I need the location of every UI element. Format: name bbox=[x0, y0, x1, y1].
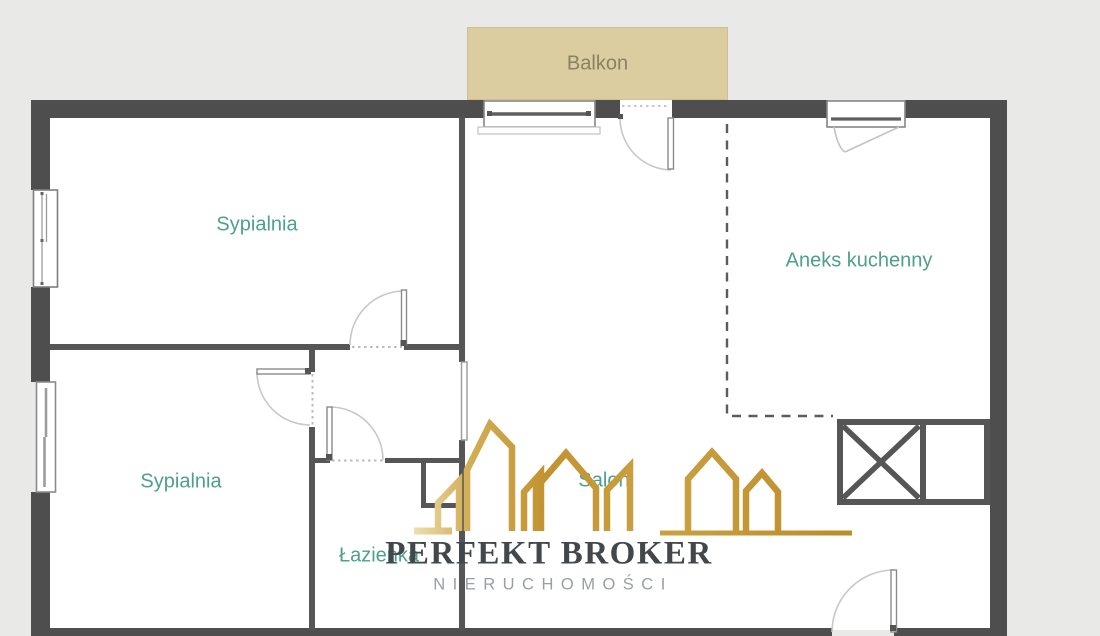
room-label-bedroom-bottom: Sypialnia bbox=[140, 471, 221, 494]
room-label-kitchen-annex: Aneks kuchenny bbox=[786, 250, 933, 273]
room-labels: Sypialnia Sypialnia Aneks kuchenny Salon… bbox=[0, 0, 1100, 636]
room-label-living-room: Salon bbox=[578, 470, 629, 493]
room-label-bedroom-top: Sypialnia bbox=[216, 214, 297, 237]
room-label-bathroom: Łazienka bbox=[339, 545, 419, 568]
floor-plan-canvas: Balkon bbox=[0, 0, 1100, 636]
